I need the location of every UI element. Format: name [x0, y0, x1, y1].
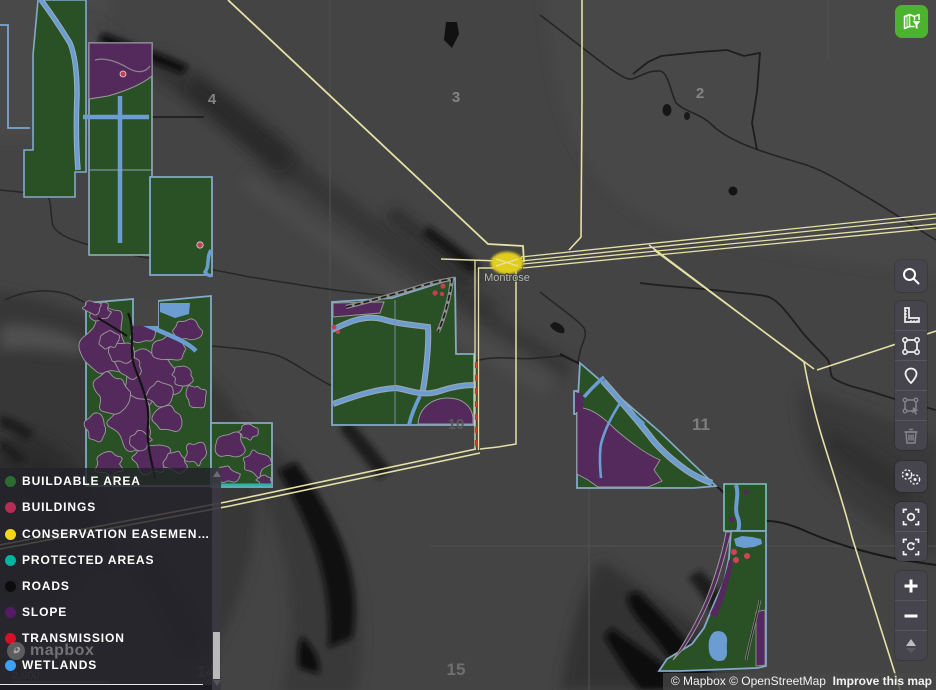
svg-text:2: 2: [696, 85, 704, 102]
svg-text:15: 15: [447, 660, 466, 679]
svg-text:Montrose: Montrose: [484, 272, 530, 284]
svg-text:10: 10: [448, 416, 465, 433]
svg-text:11: 11: [692, 415, 710, 434]
svg-text:4: 4: [208, 91, 217, 108]
svg-text:3: 3: [452, 89, 460, 106]
